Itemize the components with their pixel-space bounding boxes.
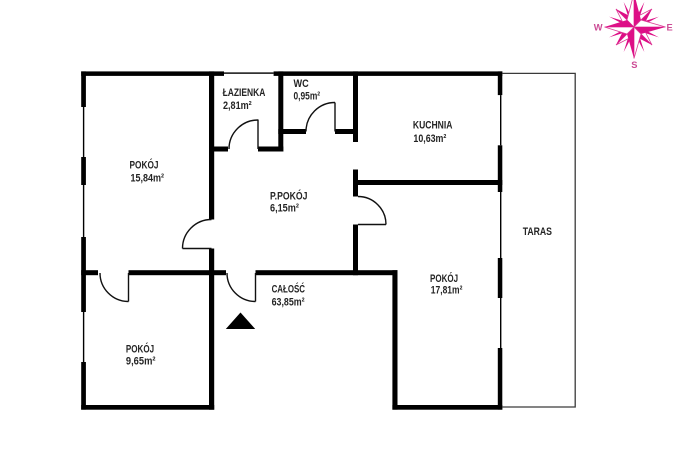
svg-text:POKÓJ: POKÓJ [430,272,458,285]
svg-text:CAŁOŚĆ: CAŁOŚĆ [272,283,305,296]
svg-text:15,84m²: 15,84m² [131,173,165,185]
svg-text:S: S [631,60,637,70]
svg-text:POKÓJ: POKÓJ [130,159,159,172]
svg-text:2,81m²: 2,81m² [223,100,252,112]
svg-text:POKÓJ: POKÓJ [126,342,154,355]
svg-text:TARAS: TARAS [523,226,552,238]
svg-text:KUCHNIA: KUCHNIA [413,120,453,132]
svg-text:P.POKÓJ: P.POKÓJ [270,189,307,202]
svg-text:WC: WC [294,78,309,90]
svg-text:6,15m²: 6,15m² [270,202,299,214]
svg-text:W: W [594,23,603,33]
svg-text:E: E [667,22,673,32]
svg-text:63,85m²: 63,85m² [272,297,305,309]
svg-text:9,65m²: 9,65m² [126,355,156,367]
svg-text:10,63m²: 10,63m² [413,133,446,145]
svg-text:ŁAZIENKA: ŁAZIENKA [223,87,266,99]
svg-text:0,95m²: 0,95m² [294,91,321,103]
svg-text:17,81m²: 17,81m² [431,285,463,297]
